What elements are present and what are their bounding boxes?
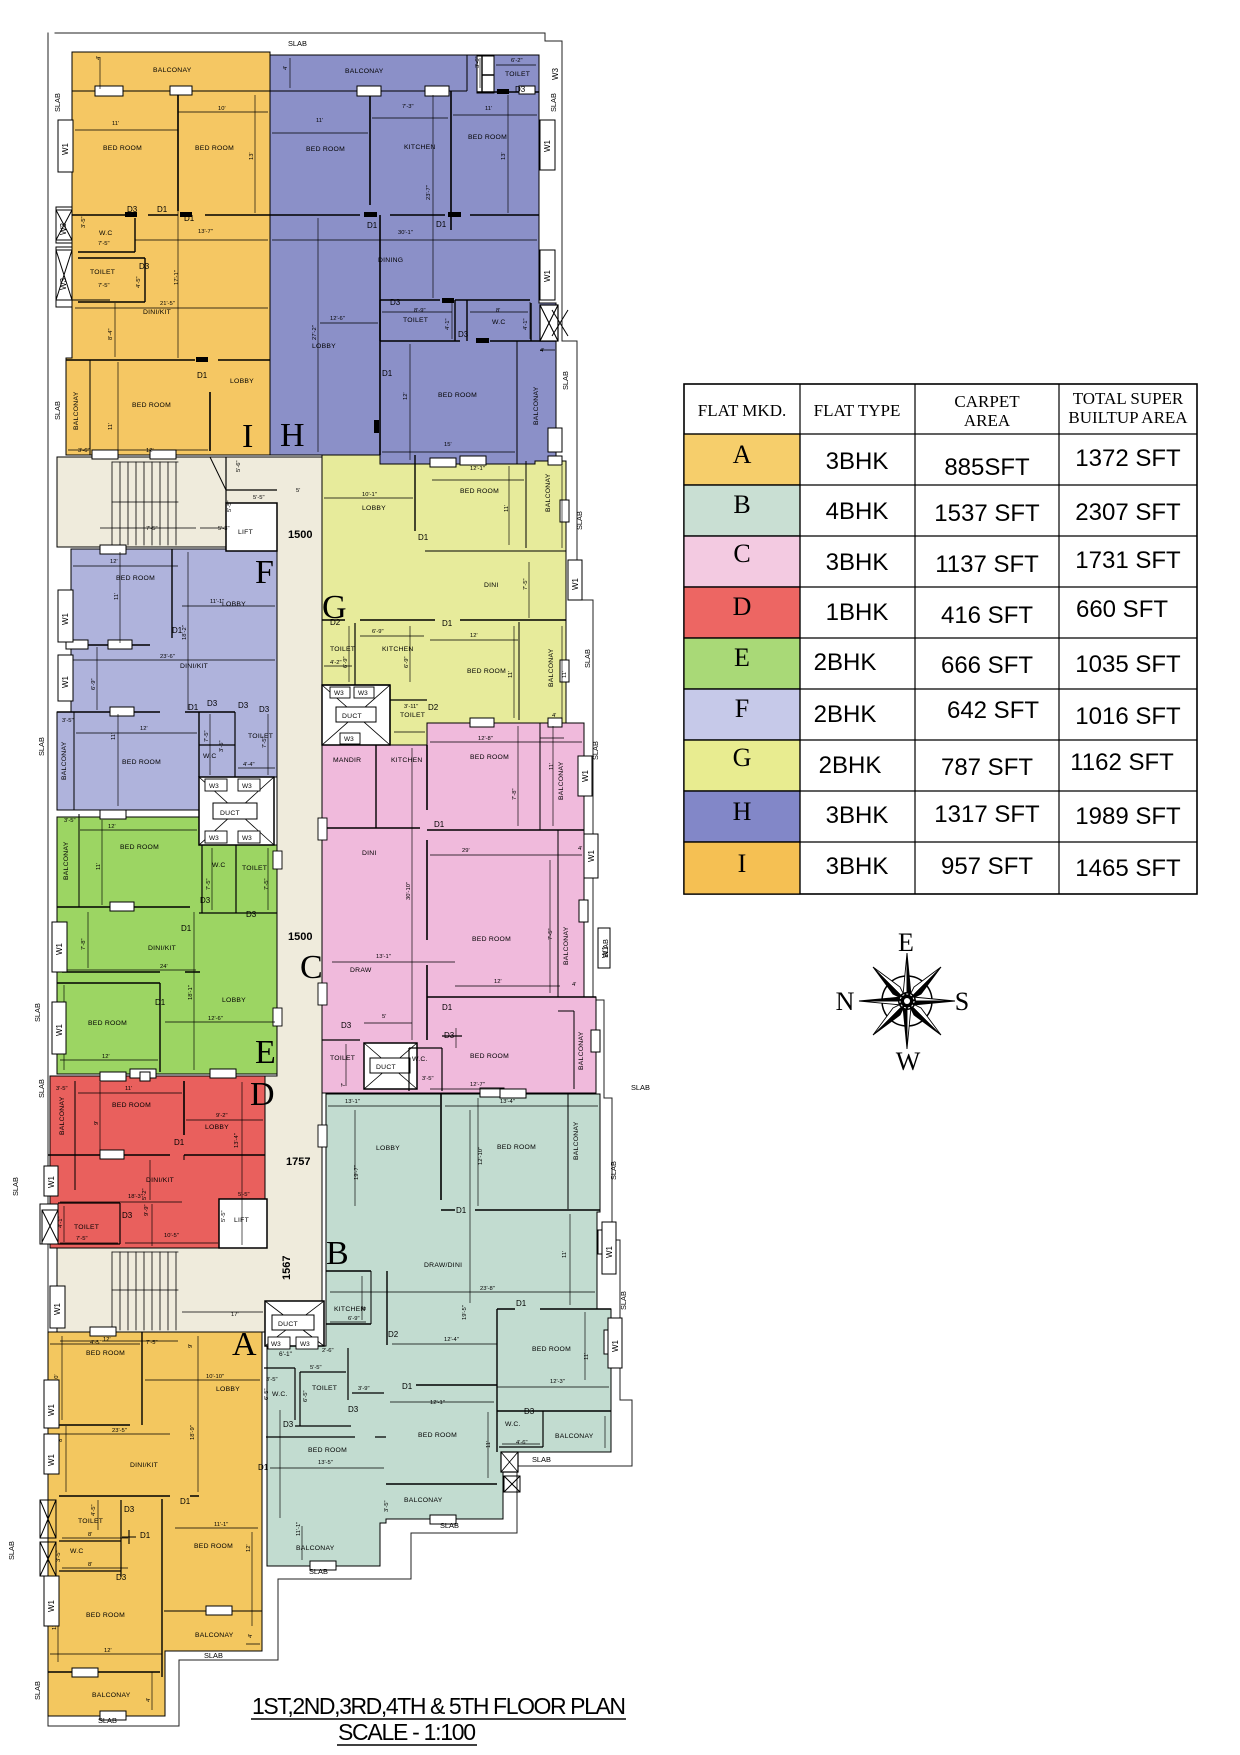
svg-text:W1: W1 — [61, 675, 70, 688]
svg-text:SLAB: SLAB — [33, 1003, 42, 1022]
svg-text:BED ROOM: BED ROOM — [470, 1053, 509, 1060]
svg-text:W1: W1 — [61, 142, 70, 155]
svg-text:4'-4": 4'-4" — [243, 762, 255, 768]
svg-text:1372 SFT: 1372 SFT — [1075, 445, 1181, 472]
svg-text:11': 11' — [485, 106, 492, 112]
svg-text:5'-2": 5'-2" — [142, 1188, 148, 1200]
svg-text:BALCONAY: BALCONAY — [548, 648, 555, 687]
svg-text:30'-1": 30'-1" — [398, 230, 413, 236]
svg-text:W3: W3 — [551, 67, 560, 80]
svg-text:W3: W3 — [300, 1341, 310, 1348]
svg-text:D3: D3 — [238, 701, 249, 710]
svg-text:7'-5": 7'-5" — [146, 526, 158, 532]
svg-text:416 SFT: 416 SFT — [941, 602, 1033, 629]
svg-text:1035 SFT: 1035 SFT — [1075, 651, 1181, 678]
svg-text:BALCONAY: BALCONAY — [345, 68, 384, 75]
svg-text:6'-1": 6'-1" — [279, 1351, 293, 1358]
svg-text:SLAB: SLAB — [591, 741, 600, 760]
svg-text:4'-6": 4'-6" — [516, 1440, 528, 1446]
svg-text:D1: D1 — [516, 1299, 527, 1308]
svg-text:SLAB: SLAB — [561, 371, 570, 390]
svg-text:11': 11' — [316, 118, 323, 124]
svg-text:9': 9' — [94, 1121, 100, 1125]
svg-text:4': 4' — [578, 846, 582, 852]
svg-text:4BHK: 4BHK — [826, 498, 889, 525]
svg-text:BALCONAY: BALCONAY — [153, 67, 192, 74]
svg-text:21'-5": 21'-5" — [160, 301, 175, 307]
svg-text:W3: W3 — [209, 783, 219, 790]
svg-text:D1: D1 — [157, 205, 168, 214]
svg-text:2BHK: 2BHK — [819, 752, 882, 779]
svg-text:1317 SFT: 1317 SFT — [934, 801, 1040, 828]
svg-text:TOILET: TOILET — [330, 646, 355, 653]
svg-text:10'-1": 10'-1" — [362, 492, 377, 498]
svg-text:DRAW/DINI: DRAW/DINI — [424, 1262, 462, 1269]
svg-text:DUCT: DUCT — [220, 810, 240, 817]
svg-text:12': 12' — [494, 979, 502, 985]
svg-text:FLAT MKD.: FLAT MKD. — [698, 401, 786, 420]
svg-text:SLAB: SLAB — [532, 1455, 551, 1464]
svg-text:11': 11' — [508, 671, 514, 678]
svg-text:D3: D3 — [283, 1420, 294, 1429]
svg-text:D3: D3 — [515, 85, 526, 94]
svg-text:7'-5": 7'-5" — [523, 578, 529, 590]
svg-text:4'-1": 4'-1" — [445, 318, 451, 330]
svg-text:8'-4": 8'-4" — [108, 328, 114, 340]
svg-text:BED ROOM: BED ROOM — [122, 759, 161, 766]
svg-text:12'-7": 12'-7" — [470, 1082, 485, 1088]
svg-text:C: C — [300, 949, 323, 986]
svg-text:666 SFT: 666 SFT — [941, 652, 1033, 679]
svg-text:W3: W3 — [358, 690, 368, 697]
svg-text:12'-6": 12'-6" — [208, 1016, 223, 1022]
svg-text:W.C.: W.C. — [272, 1391, 288, 1398]
svg-text:12': 12' — [102, 1054, 110, 1060]
svg-text:D1: D1 — [188, 703, 199, 712]
svg-text:FLAT TYPE: FLAT TYPE — [814, 401, 901, 420]
svg-text:D1: D1 — [382, 369, 393, 378]
svg-text:W1: W1 — [47, 1599, 56, 1612]
svg-text:13'-1": 13'-1" — [345, 1099, 360, 1105]
svg-text:3'-9": 3'-9" — [358, 1386, 370, 1392]
svg-text:BED ROOM: BED ROOM — [194, 1543, 233, 1550]
svg-text:1ST,2ND,3RD,4TH & 5TH FLOOR P: 1ST,2ND,3RD,4TH & 5TH FLOOR PLAN — [252, 1693, 626, 1719]
svg-text:D1: D1 — [436, 220, 447, 229]
svg-text:D1: D1 — [181, 924, 192, 933]
svg-text:957 SFT: 957 SFT — [941, 853, 1033, 880]
svg-text:4'-5": 4'-5" — [91, 1504, 97, 1516]
svg-text:7'-5": 7'-5" — [98, 241, 110, 247]
svg-text:DINING: DINING — [378, 257, 403, 264]
svg-text:5': 5' — [382, 1014, 386, 1020]
svg-text:13'-7": 13'-7" — [198, 229, 213, 235]
svg-text:13'-4": 13'-4" — [234, 1133, 240, 1148]
svg-text:W1: W1 — [543, 269, 552, 282]
svg-text:11'-1": 11'-1" — [210, 599, 224, 605]
svg-text:7'-5": 7'-5" — [206, 878, 212, 890]
svg-text:D3: D3 — [207, 699, 218, 708]
svg-text:23'-5": 23'-5" — [112, 1428, 127, 1434]
svg-text:1989 SFT: 1989 SFT — [1075, 803, 1181, 830]
svg-text:D1: D1 — [155, 998, 166, 1007]
svg-text:D2: D2 — [428, 703, 439, 712]
svg-text:A: A — [733, 440, 752, 469]
svg-text:3'-5": 3'-5" — [62, 718, 74, 724]
svg-text:5'-5": 5'-5" — [238, 1192, 250, 1198]
svg-text:BED ROOM: BED ROOM — [132, 402, 171, 409]
svg-text:G: G — [322, 589, 347, 626]
svg-text:D3: D3 — [390, 298, 401, 307]
svg-text:1537 SFT: 1537 SFT — [934, 500, 1040, 527]
svg-text:23'-8": 23'-8" — [480, 1286, 495, 1292]
svg-text:D1: D1 — [442, 1003, 453, 1012]
svg-text:12': 12' — [140, 726, 148, 732]
svg-text:1500: 1500 — [288, 931, 312, 943]
svg-text:BALCONAY: BALCONAY — [404, 1497, 443, 1504]
svg-text:1500: 1500 — [288, 529, 312, 541]
svg-text:12'-1": 12'-1" — [470, 466, 485, 472]
svg-text:11': 11' — [112, 121, 119, 127]
svg-text:D1: D1 — [418, 533, 429, 542]
svg-text:BED ROOM: BED ROOM — [308, 1447, 347, 1454]
svg-text:13'-5": 13'-5" — [318, 1460, 333, 1466]
svg-text:8': 8' — [362, 1306, 368, 1310]
svg-text:7'-5": 7'-5" — [98, 283, 110, 289]
svg-text:4'-5": 4'-5" — [136, 276, 142, 288]
svg-text:2307 SFT: 2307 SFT — [1075, 499, 1181, 526]
svg-text:3'-5": 3'-5" — [56, 1086, 68, 1092]
svg-text:N: N — [836, 987, 855, 1016]
svg-text:7'-5": 7'-5" — [548, 928, 554, 940]
svg-text:W.C: W.C — [70, 1548, 84, 1555]
svg-text:KITCHEN: KITCHEN — [391, 757, 423, 764]
svg-text:11': 11' — [562, 1251, 568, 1258]
svg-text:W3: W3 — [209, 835, 219, 842]
svg-text:W3: W3 — [242, 835, 252, 842]
svg-text:3BHK: 3BHK — [826, 448, 889, 475]
svg-text:BALCONAY: BALCONAY — [563, 926, 570, 965]
svg-text:F: F — [255, 554, 274, 591]
svg-text:BED ROOM: BED ROOM — [497, 1144, 536, 1151]
svg-text:DINI/KIT: DINI/KIT — [143, 309, 171, 316]
svg-text:BED ROOM: BED ROOM — [438, 392, 477, 399]
svg-text:BALCONAY: BALCONAY — [73, 391, 80, 430]
svg-text:TOILET: TOILET — [330, 1055, 355, 1062]
svg-text:9': 9' — [188, 1344, 194, 1348]
svg-text:BED ROOM: BED ROOM — [472, 936, 511, 943]
svg-text:BED ROOM: BED ROOM — [468, 134, 507, 141]
svg-text:12'-8": 12'-8" — [478, 736, 493, 742]
svg-text:TOILET: TOILET — [403, 317, 428, 324]
svg-text:12'-4": 12'-4" — [444, 1337, 459, 1343]
svg-text:13'-1": 13'-1" — [376, 954, 391, 960]
svg-text:TOILET: TOILET — [505, 71, 530, 78]
svg-text:SLAB: SLAB — [33, 1681, 42, 1700]
svg-text:2'-6": 2'-6" — [322, 1348, 334, 1354]
svg-text:6'-9": 6'-9" — [91, 678, 97, 690]
svg-text:W.C: W.C — [99, 230, 113, 237]
svg-text:11': 11' — [108, 423, 114, 430]
svg-text:10'-10": 10'-10" — [206, 1374, 224, 1380]
svg-text:BED ROOM: BED ROOM — [460, 488, 499, 495]
svg-text:12'-6": 12'-6" — [330, 316, 345, 322]
svg-text:3BHK: 3BHK — [826, 853, 889, 880]
svg-text:8': 8' — [88, 1532, 92, 1538]
svg-text:D3: D3 — [122, 1211, 133, 1220]
svg-text:W.C: W.C — [492, 319, 506, 326]
svg-text:D2: D2 — [388, 1330, 399, 1339]
svg-text:LOBBY: LOBBY — [222, 997, 246, 1004]
svg-text:18'-1": 18'-1" — [188, 985, 194, 1000]
svg-text:642 SFT: 642 SFT — [947, 697, 1039, 724]
svg-text:12': 12' — [146, 448, 154, 454]
svg-text:SLAB: SLAB — [204, 1651, 223, 1660]
svg-text:LIFT: LIFT — [238, 529, 253, 536]
svg-text:B: B — [733, 490, 750, 519]
svg-text:B: B — [326, 1235, 349, 1272]
svg-text:12': 12' — [403, 392, 409, 400]
svg-text:12': 12' — [110, 559, 118, 565]
svg-text:W1: W1 — [61, 612, 70, 625]
svg-text:23'-7": 23'-7" — [426, 185, 432, 200]
svg-text:D3: D3 — [444, 1031, 455, 1040]
svg-text:SLAB: SLAB — [601, 939, 610, 958]
svg-text:3'-5": 3'-5" — [219, 740, 225, 752]
svg-text:W1: W1 — [55, 1023, 64, 1036]
svg-text:W.C: W.C — [212, 862, 226, 869]
svg-text:D3: D3 — [458, 330, 469, 339]
svg-text:660 SFT: 660 SFT — [1076, 596, 1168, 623]
svg-text:LOBBY: LOBBY — [376, 1145, 400, 1152]
svg-text:7'-8": 7'-8" — [512, 788, 518, 800]
svg-text:AREA: AREA — [964, 411, 1011, 430]
svg-text:12'-1": 12'-1" — [430, 1400, 445, 1406]
svg-text:G: G — [733, 743, 752, 772]
svg-text:BED ROOM: BED ROOM — [112, 1102, 151, 1109]
svg-text:6'-9": 6'-9" — [372, 629, 384, 635]
svg-text:W3: W3 — [271, 1341, 281, 1348]
svg-text:DINI: DINI — [362, 850, 377, 857]
svg-text:3BHK: 3BHK — [826, 549, 889, 576]
svg-text:D1: D1 — [184, 214, 195, 223]
svg-text:787 SFT: 787 SFT — [941, 754, 1033, 781]
svg-text:DUCT: DUCT — [278, 1321, 298, 1328]
svg-text:SLAB: SLAB — [7, 1541, 16, 1560]
svg-text:27'-2": 27'-2" — [312, 325, 318, 340]
svg-text:D3: D3 — [341, 1021, 352, 1030]
svg-text:D1: D1 — [197, 371, 208, 380]
svg-text:SLAB: SLAB — [549, 93, 558, 112]
svg-text:SLAB: SLAB — [37, 1079, 46, 1098]
svg-text:4': 4' — [572, 982, 576, 988]
svg-text:6'-9": 6'-9" — [348, 1316, 360, 1322]
svg-text:7'-8": 7'-8" — [81, 938, 87, 950]
svg-text:BED ROOM: BED ROOM — [88, 1020, 127, 1027]
svg-text:BED ROOM: BED ROOM — [120, 844, 159, 851]
svg-text:TOILET: TOILET — [400, 712, 425, 719]
svg-text:LIFT: LIFT — [234, 1217, 249, 1224]
svg-text:D1: D1 — [180, 1497, 191, 1506]
svg-text:1757: 1757 — [286, 1156, 310, 1168]
svg-text:CARPET: CARPET — [954, 392, 1020, 411]
svg-text:BALCONAY: BALCONAY — [555, 1433, 594, 1440]
svg-text:19'-5": 19'-5" — [462, 1305, 468, 1320]
svg-text:17': 17' — [231, 1312, 239, 1318]
svg-text:BED ROOM: BED ROOM — [86, 1612, 125, 1619]
svg-text:D1: D1 — [367, 221, 378, 230]
svg-text:9'-2": 9'-2" — [216, 1113, 228, 1119]
svg-text:LOBBY: LOBBY — [312, 343, 336, 350]
svg-text:7'-3": 7'-3" — [402, 104, 414, 110]
svg-text:W3: W3 — [242, 783, 252, 790]
svg-text:I: I — [738, 849, 747, 878]
svg-text:TOILET: TOILET — [78, 1518, 103, 1525]
svg-text:W1: W1 — [47, 1453, 56, 1466]
svg-text:5'-5": 5'-5" — [253, 495, 265, 501]
svg-text:SLAB: SLAB — [583, 649, 592, 668]
svg-text:D1: D1 — [172, 626, 183, 635]
svg-text:SLAB: SLAB — [53, 93, 62, 112]
svg-text:BED ROOM: BED ROOM — [470, 754, 509, 761]
svg-text:4'-2": 4'-2" — [330, 660, 342, 666]
svg-text:W.C.: W.C. — [412, 1056, 428, 1063]
svg-text:LOBBY: LOBBY — [222, 601, 246, 608]
svg-text:D3: D3 — [139, 262, 150, 271]
svg-text:BUILTUP AREA: BUILTUP AREA — [1068, 408, 1188, 427]
svg-text:F: F — [735, 694, 749, 723]
svg-text:SLAB: SLAB — [98, 1716, 117, 1725]
svg-text:LOBBY: LOBBY — [362, 505, 386, 512]
svg-text:7'-5": 7'-5" — [262, 736, 268, 748]
svg-text:W1: W1 — [581, 769, 590, 782]
svg-text:TOILET: TOILET — [242, 865, 267, 872]
svg-text:18'-3": 18'-3" — [128, 1194, 143, 1200]
svg-text:15': 15' — [444, 442, 452, 448]
svg-text:9'-9": 9'-9" — [144, 1204, 150, 1216]
svg-text:BALCONAY: BALCONAY — [195, 1632, 234, 1639]
svg-text:I: I — [242, 418, 253, 455]
svg-text:LOBBY: LOBBY — [216, 1386, 240, 1393]
svg-text:BED ROOM: BED ROOM — [86, 1350, 125, 1357]
svg-text:4': 4' — [552, 713, 556, 719]
svg-text:H: H — [733, 797, 752, 826]
svg-text:11': 11' — [96, 863, 102, 870]
svg-text:BALCONAY: BALCONAY — [573, 1121, 580, 1160]
svg-text:1731 SFT: 1731 SFT — [1075, 547, 1181, 574]
svg-text:10': 10' — [218, 106, 226, 112]
svg-text:12': 12' — [108, 824, 116, 830]
svg-text:BED ROOM: BED ROOM — [116, 575, 155, 582]
svg-text:D3: D3 — [524, 1407, 535, 1416]
svg-text:18'-2": 18'-2" — [182, 625, 188, 640]
svg-text:BED ROOM: BED ROOM — [306, 146, 345, 153]
svg-text:1465 SFT: 1465 SFT — [1075, 855, 1181, 882]
svg-text:3'-5": 3'-5" — [81, 216, 87, 228]
svg-text:W3: W3 — [334, 690, 344, 697]
svg-text:BALCONAY: BALCONAY — [545, 473, 552, 512]
svg-text:SLAB: SLAB — [609, 1161, 618, 1180]
svg-text:LOBBY: LOBBY — [205, 1124, 229, 1131]
svg-text:885SFT: 885SFT — [944, 454, 1030, 481]
svg-text:DUCT: DUCT — [376, 1064, 396, 1071]
svg-text:12': 12' — [103, 1337, 111, 1343]
svg-text:3'-5": 3'-5" — [384, 1500, 390, 1512]
svg-text:5'-3": 5'-3" — [218, 526, 230, 532]
svg-text:3'-5": 3'-5" — [422, 1076, 434, 1082]
svg-text:BED ROOM: BED ROOM — [532, 1346, 571, 1353]
svg-text:D3: D3 — [127, 205, 138, 214]
svg-text:E: E — [734, 643, 750, 672]
svg-text:W.C.: W.C. — [505, 1421, 521, 1428]
svg-text:D1: D1 — [402, 1382, 413, 1391]
svg-text:W1: W1 — [55, 942, 64, 955]
svg-text:11': 11' — [125, 1086, 132, 1092]
svg-text:A: A — [232, 1326, 257, 1363]
svg-text:D1: D1 — [456, 1206, 467, 1215]
svg-text:5'-6": 5'-6" — [236, 460, 242, 472]
svg-text:3'-6": 3'-6" — [78, 448, 90, 454]
svg-text:BED ROOM: BED ROOM — [103, 145, 142, 152]
svg-text:KITCHEN: KITCHEN — [334, 1306, 366, 1313]
svg-text:13'-4": 13'-4" — [500, 1099, 515, 1105]
svg-text:TOILET: TOILET — [312, 1385, 337, 1392]
svg-text:S: S — [955, 987, 969, 1016]
svg-text:D3: D3 — [348, 1405, 359, 1414]
svg-text:3'-5": 3'-5" — [266, 1377, 278, 1383]
svg-text:4'-1": 4'-1" — [58, 1216, 64, 1228]
svg-text:12': 12' — [104, 1648, 112, 1654]
svg-text:13': 13' — [249, 152, 255, 160]
svg-text:DINI: DINI — [484, 582, 499, 589]
svg-text:4': 4' — [283, 66, 289, 70]
svg-text:SLAB: SLAB — [37, 737, 46, 756]
svg-text:BALCONAY: BALCONAY — [59, 1096, 66, 1135]
svg-text:SLAB: SLAB — [309, 1567, 328, 1576]
svg-text:E: E — [255, 1034, 276, 1071]
svg-text:7'-5": 7'-5" — [204, 730, 210, 742]
svg-text:W1: W1 — [47, 1175, 56, 1188]
svg-text:TOILET: TOILET — [74, 1224, 99, 1231]
svg-text:5'-5": 5'-5" — [310, 1365, 322, 1371]
svg-text:D1: D1 — [140, 1531, 151, 1540]
svg-text:3'-5": 3'-5" — [56, 1550, 62, 1562]
svg-text:1137 SFT: 1137 SFT — [935, 551, 1039, 578]
svg-text:2BHK: 2BHK — [814, 649, 877, 676]
svg-text:5'-5": 5'-5" — [227, 500, 233, 512]
svg-text:4': 4' — [248, 1634, 254, 1638]
svg-text:6'-5": 6'-5" — [264, 1388, 270, 1400]
svg-text:H: H — [280, 417, 305, 454]
svg-text:11': 11' — [114, 593, 120, 600]
svg-text:11': 11' — [549, 763, 555, 770]
svg-text:W1: W1 — [543, 139, 552, 152]
svg-text:SCALE - 1:100: SCALE - 1:100 — [338, 1719, 476, 1745]
svg-text:D3: D3 — [200, 896, 211, 905]
svg-text:W1: W1 — [611, 1339, 620, 1352]
svg-text:7'-5": 7'-5" — [76, 1236, 88, 1242]
svg-text:30'-10": 30'-10" — [406, 882, 412, 900]
svg-text:D: D — [250, 1076, 275, 1113]
svg-text:D1: D1 — [174, 1138, 185, 1147]
svg-text:SLAB: SLAB — [11, 1177, 20, 1196]
svg-text:23'-6": 23'-6" — [160, 654, 175, 660]
svg-text:4': 4' — [146, 1698, 152, 1702]
svg-text:LOBBY: LOBBY — [230, 378, 254, 385]
svg-text:C: C — [733, 539, 750, 568]
svg-text:W1: W1 — [605, 1245, 614, 1258]
svg-text:6'-9": 6'-9" — [404, 656, 410, 668]
svg-text:4'-1": 4'-1" — [523, 318, 529, 330]
